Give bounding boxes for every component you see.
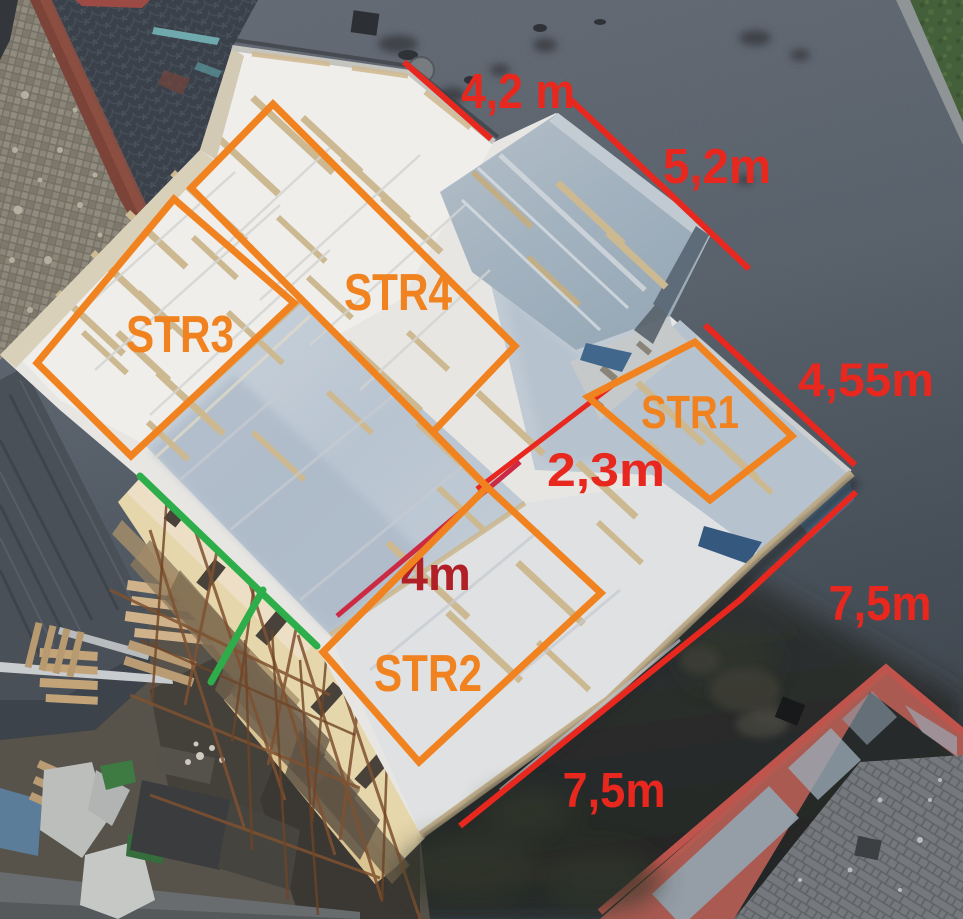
svg-text:7,5m: 7,5m <box>829 577 932 631</box>
svg-text:STR3: STR3 <box>126 306 234 364</box>
svg-text:4,55m: 4,55m <box>798 353 934 406</box>
svg-text:STR2: STR2 <box>374 645 482 703</box>
svg-text:STR1: STR1 <box>641 386 739 438</box>
svg-text:STR4: STR4 <box>344 264 452 322</box>
svg-text:5,2m: 5,2m <box>663 140 771 194</box>
svg-text:7,5m: 7,5m <box>563 764 666 818</box>
svg-text:4,2 m: 4,2 m <box>461 65 575 119</box>
svg-text:4m: 4m <box>401 547 471 600</box>
